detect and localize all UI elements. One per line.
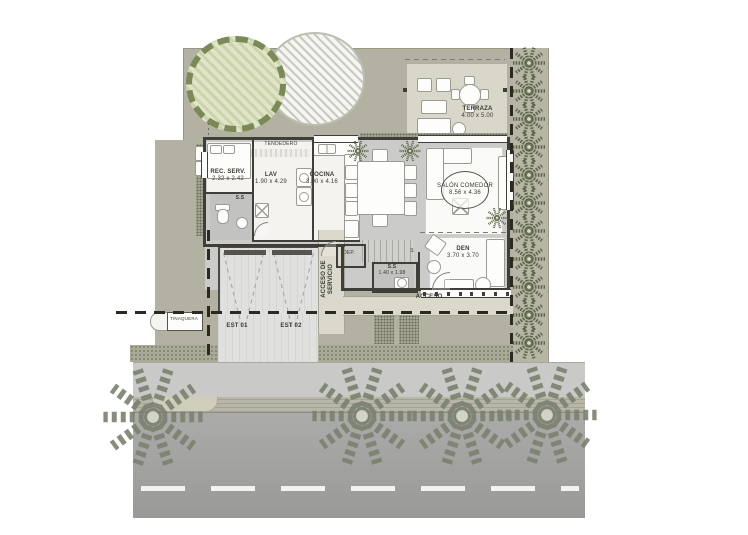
property-line-west xyxy=(207,230,210,362)
terrace-armchair xyxy=(436,78,451,92)
terrace-chair xyxy=(480,89,489,100)
pillow xyxy=(210,145,222,154)
kitchen-sink xyxy=(318,144,336,154)
dining-chair xyxy=(404,201,417,216)
label-cocina: COCINA 3.00 x 4.16 xyxy=(297,172,347,186)
label-est-02: EST 02 xyxy=(268,323,314,330)
pillow xyxy=(223,145,235,154)
terrace-post xyxy=(503,88,507,92)
label-tendedero: TENDEDERO xyxy=(250,141,312,147)
driveway-apron xyxy=(152,397,218,412)
tinaquera-door-arc xyxy=(150,312,168,331)
grass-strip-right xyxy=(318,345,513,362)
terrace-sofa xyxy=(417,118,451,134)
tree-canopy-green xyxy=(186,36,286,132)
grass-strip-left xyxy=(130,345,218,362)
side-garden-strip xyxy=(513,48,549,362)
dining-chair xyxy=(404,183,417,198)
curb-line xyxy=(133,412,585,413)
dining-chair xyxy=(372,149,388,162)
label-den: DEN 3.70 x 3.70 xyxy=(440,246,486,260)
wall-bed-bath xyxy=(205,192,252,194)
den-open-line xyxy=(420,232,506,233)
tendedero-lines xyxy=(250,149,310,157)
kitchen-window xyxy=(314,135,358,143)
fridge xyxy=(344,220,359,238)
toilet-pb-lid xyxy=(397,278,407,288)
floor-plan: TENDEDERO REC. SERV. 2.32 x 2.42 LAV 1.9… xyxy=(0,0,748,535)
label-stair-s: S xyxy=(406,248,418,254)
driveway xyxy=(218,313,318,362)
terrace-table xyxy=(421,100,447,114)
wall-den-hall xyxy=(418,252,420,290)
terrace-post xyxy=(403,88,407,92)
property-line-south xyxy=(116,311,513,314)
dining-table xyxy=(357,161,405,215)
wall-bed-lav xyxy=(252,140,254,240)
wall-lav-cocina xyxy=(312,140,314,240)
garage-door xyxy=(272,250,312,255)
terrace-roof-line xyxy=(405,59,505,60)
label-dep: DEP. xyxy=(341,250,357,256)
street-center-line xyxy=(141,486,579,491)
terrace-chair xyxy=(451,89,460,100)
sink xyxy=(236,217,248,229)
street xyxy=(133,412,585,518)
terrace-chair xyxy=(464,76,475,85)
garage-door xyxy=(224,250,266,255)
label-service-bath: S.S xyxy=(230,195,250,201)
entry-planter xyxy=(374,315,394,344)
property-line-east xyxy=(510,48,513,362)
utility-sink xyxy=(255,203,269,218)
label-acceso: ACCESO xyxy=(404,294,454,301)
dining-chair xyxy=(404,165,417,180)
den-side-table xyxy=(427,260,441,274)
label-bath-pb: S.S 1.40 x 1.98 xyxy=(368,264,416,276)
terrace-dining-table xyxy=(459,84,481,106)
toilet xyxy=(217,209,229,224)
label-salon-comedor: SALÓN COMEDOR 8.56 x 4.36 xyxy=(441,171,489,209)
label-tinaquera: TINAQUERA xyxy=(167,316,201,322)
label-acceso-servicio: ACCESO DE SERVICIO xyxy=(321,249,335,309)
dining-chair xyxy=(345,201,358,216)
terrace-armchair xyxy=(417,78,432,92)
label-terraza: TERRAZA 4.00 x 5.00 xyxy=(450,106,505,120)
salon-sliding-door xyxy=(418,135,507,143)
entry-planter xyxy=(399,315,419,344)
label-lav: LAV 1.90 x 4.29 xyxy=(246,172,296,186)
label-est-01: EST 01 xyxy=(214,323,260,330)
wall-mid xyxy=(252,240,360,242)
dining-chair xyxy=(372,214,388,227)
dryer xyxy=(296,187,312,206)
